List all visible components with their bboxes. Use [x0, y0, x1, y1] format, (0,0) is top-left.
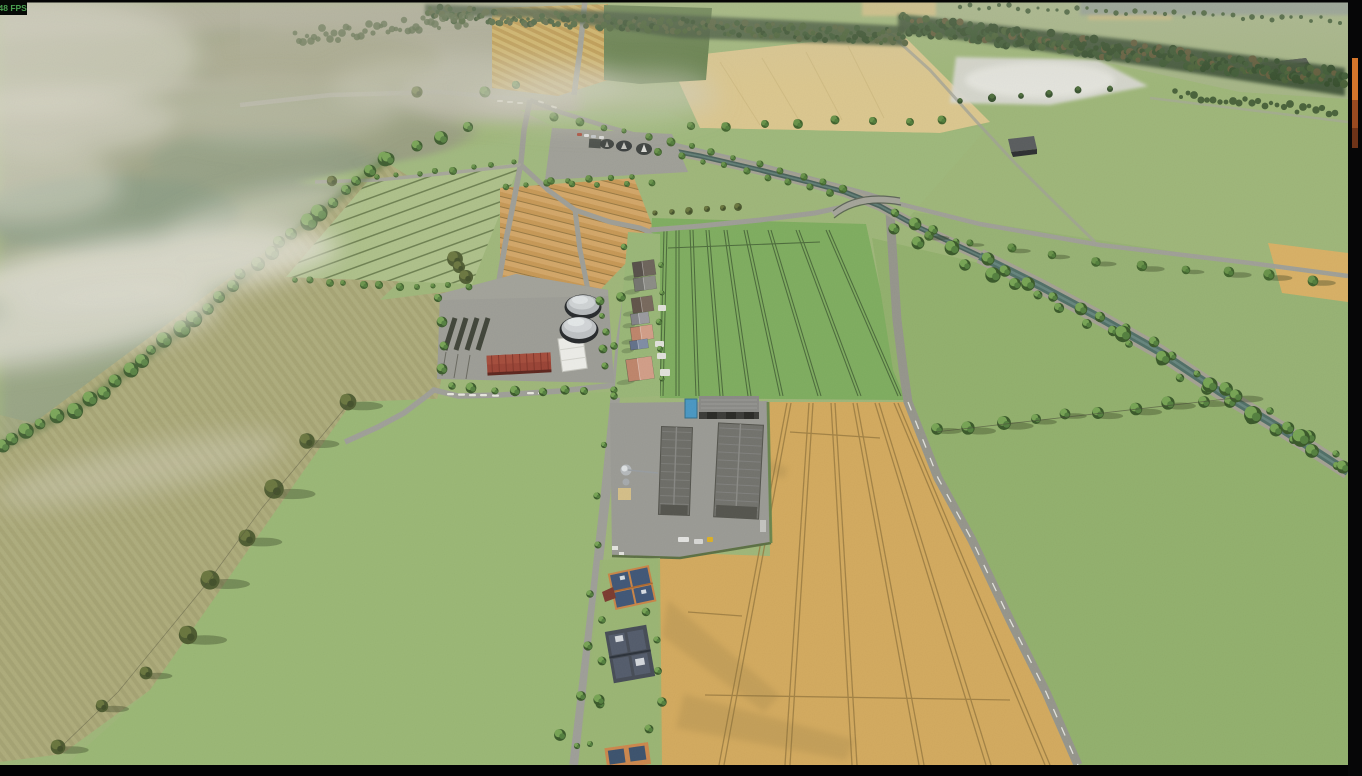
svg-text:48 FPS: 48 FPS [0, 3, 27, 13]
